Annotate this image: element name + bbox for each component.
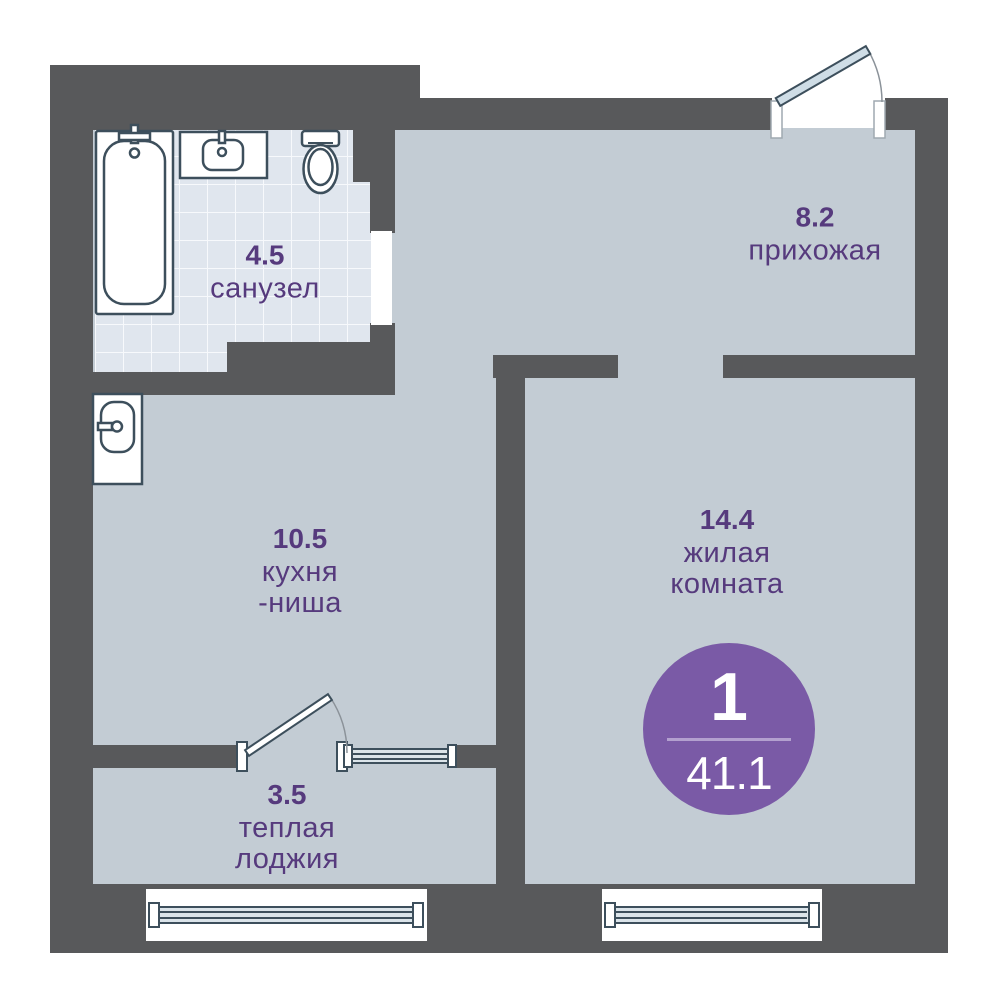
badge-divider (667, 738, 791, 741)
wall-segment (496, 355, 525, 885)
room-label-hallway: 8.2 прихожая (748, 200, 881, 267)
room-area: 8.2 (748, 200, 881, 236)
apartment-badge: 1 41.1 (643, 643, 815, 815)
room-label-loggia: 3.5 теплая лоджия (235, 777, 339, 875)
room-area: 3.5 (235, 777, 339, 813)
room-name: жилая (670, 538, 783, 569)
room-label-bathroom: 4.5 санузел (210, 238, 320, 305)
bathtub-icon (96, 125, 173, 314)
loggia-window-icon (344, 745, 456, 767)
room-name: комната (670, 569, 783, 600)
wall-segment (370, 323, 395, 395)
room-name: прихожая (748, 236, 881, 267)
room-name: лоджия (235, 844, 339, 875)
room-label-living: 14.4 жилая комната (670, 502, 783, 600)
wall-segment (50, 65, 420, 130)
total-area: 41.1 (686, 750, 772, 796)
door-swing-arc (868, 50, 882, 102)
room-area: 10.5 (258, 521, 342, 557)
wall-segment (93, 372, 395, 395)
right-window-icon (605, 903, 819, 927)
room-area: 4.5 (210, 238, 320, 274)
toilet-icon (302, 131, 339, 193)
room-name: теплая (235, 813, 339, 844)
wall-segment (50, 65, 93, 953)
bathroom-door-opening (371, 231, 392, 325)
wall-segment (453, 745, 496, 768)
wall-segment (723, 355, 915, 378)
left-window-icon (149, 903, 423, 927)
room-label-kitchen: 10.5 кухня -ниша (258, 521, 342, 619)
room-area: 14.4 (670, 502, 783, 538)
wall-segment (353, 128, 370, 182)
floor-plan: 4.5 санузел 8.2 прихожая 10.5 кухня -ниш… (0, 0, 1001, 1001)
wall-segment (93, 745, 238, 768)
door-leaf (776, 46, 871, 106)
room-name: санузел (210, 274, 320, 305)
floor-plan-svg (0, 0, 1001, 1001)
rooms-count: 1 (710, 663, 748, 731)
room-name: -ниша (258, 588, 342, 619)
door-jamb (874, 101, 885, 138)
door-jamb (237, 742, 247, 771)
wall-segment (370, 128, 395, 233)
wall-segment (915, 98, 948, 953)
entrance-door-icon (776, 46, 882, 106)
washbasin-icon (180, 131, 267, 178)
kitchen-sink-icon (93, 394, 142, 484)
wall-segment (420, 98, 772, 130)
room-name: кухня (258, 557, 342, 588)
